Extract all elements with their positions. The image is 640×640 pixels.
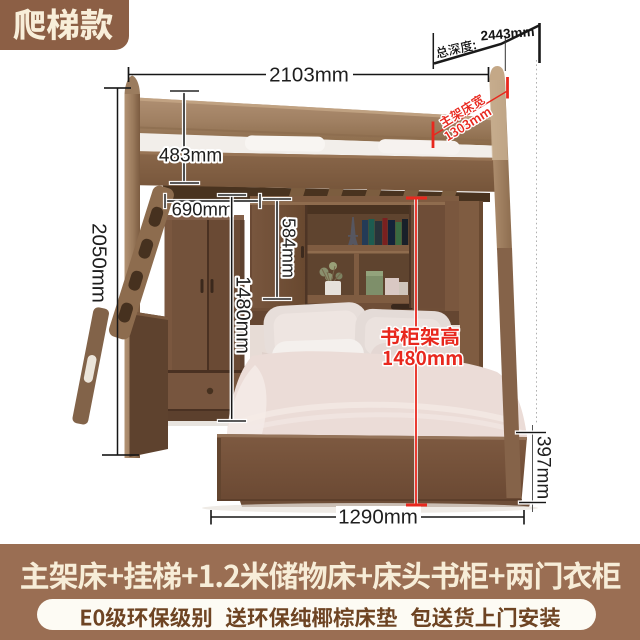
svg-text:690mm: 690mm bbox=[172, 199, 234, 220]
svg-text:2103mm: 2103mm bbox=[269, 64, 349, 87]
svg-text:483mm: 483mm bbox=[159, 146, 222, 167]
svg-text:397mm: 397mm bbox=[533, 436, 554, 499]
svg-text:1480mm: 1480mm bbox=[232, 276, 254, 354]
svg-text:2050mm: 2050mm bbox=[88, 223, 111, 303]
svg-text:584mm: 584mm bbox=[279, 218, 299, 278]
svg-text:1290mm: 1290mm bbox=[338, 506, 418, 529]
svg-text:2443mm: 2443mm bbox=[480, 24, 535, 44]
